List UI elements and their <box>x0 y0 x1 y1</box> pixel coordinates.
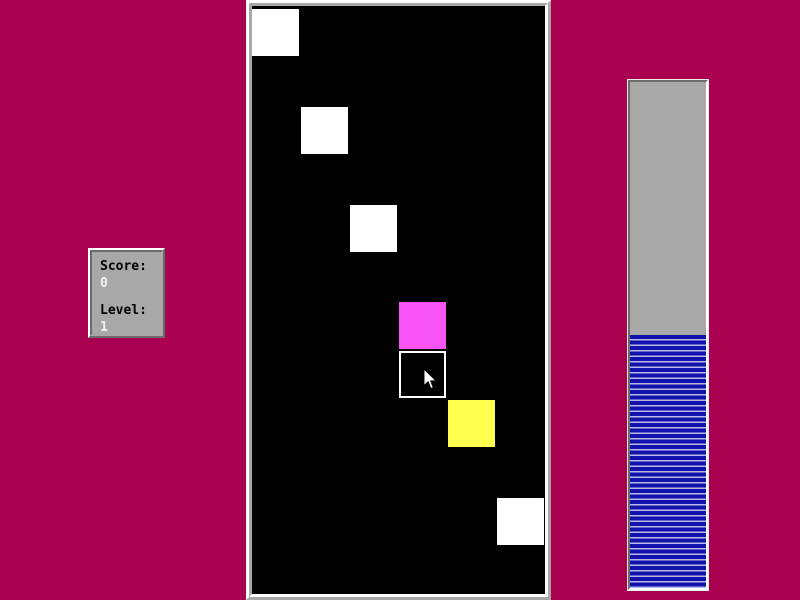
level-label: Level: <box>100 302 161 319</box>
game-window: Score: 0 Level: 1 <box>0 0 800 600</box>
score-panel: Score: 0 Level: 1 <box>88 248 165 338</box>
score-value: 0 <box>100 275 161 292</box>
game-square[interactable] <box>252 9 299 56</box>
game-board[interactable] <box>249 3 548 597</box>
panel-spacer <box>100 292 161 302</box>
target-outline-square[interactable] <box>399 351 446 398</box>
game-square[interactable] <box>350 205 397 252</box>
score-label: Score: <box>100 258 161 275</box>
game-board-frame <box>246 0 551 600</box>
game-square[interactable] <box>497 498 544 545</box>
progress-bar-fill <box>630 335 706 588</box>
game-square[interactable] <box>301 107 348 154</box>
progress-bar <box>628 80 708 590</box>
game-square[interactable] <box>399 302 446 349</box>
level-value: 1 <box>100 319 161 336</box>
score-panel-face: Score: 0 Level: 1 <box>90 250 163 336</box>
game-square[interactable] <box>448 400 495 447</box>
